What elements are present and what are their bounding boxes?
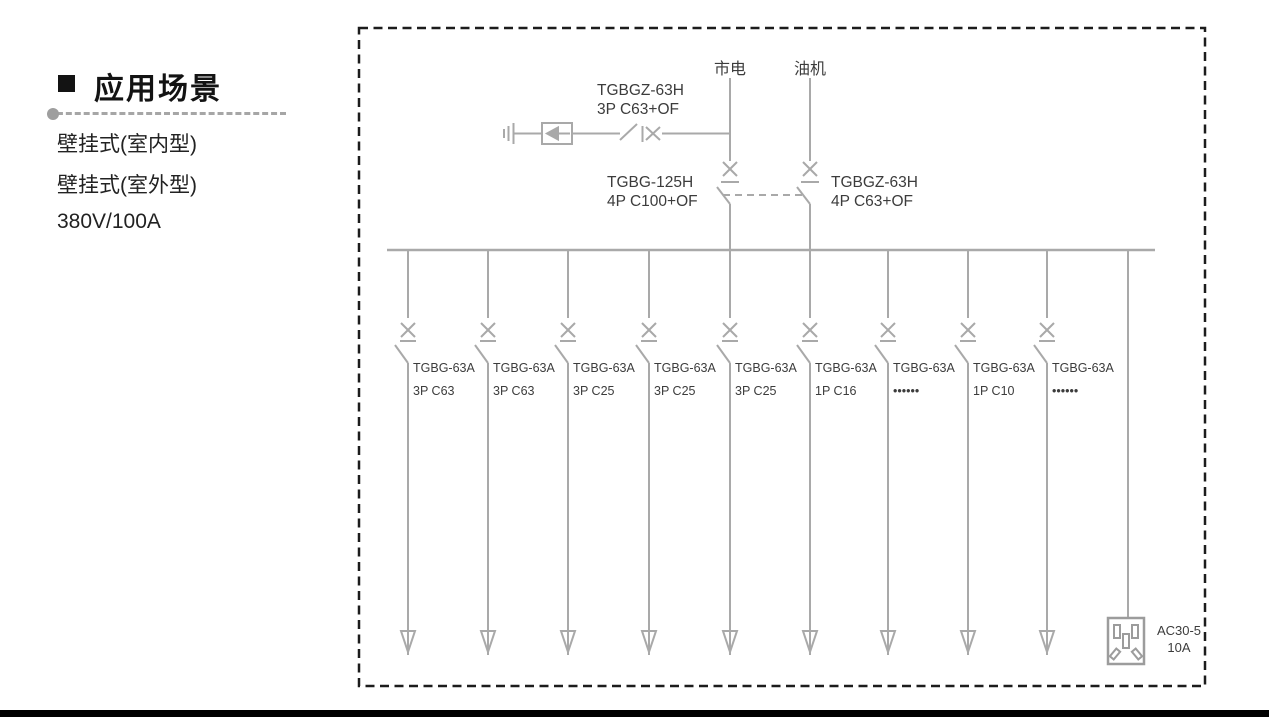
branch-rating: 3P C63 bbox=[493, 384, 555, 398]
mains-breaker-rating: 4P C100+OF bbox=[607, 192, 698, 211]
branch-label: TGBG-63A 3P C25 bbox=[735, 361, 797, 398]
branch-model: TGBG-63A bbox=[413, 361, 475, 375]
branch-model: TGBG-63A bbox=[735, 361, 797, 375]
branch-rating: 1P C16 bbox=[815, 384, 877, 398]
branch-label: TGBG-63A •••••• bbox=[893, 361, 955, 398]
spd-breaker-label: TGBGZ-63H 3P C63+OF bbox=[597, 81, 684, 119]
spd-breaker-blade bbox=[620, 124, 637, 140]
branch-rating: 3P C25 bbox=[654, 384, 716, 398]
socket-icon bbox=[1108, 618, 1144, 664]
branch-label: TGBG-63A 3P C63 bbox=[493, 361, 555, 398]
branch-rating: 1P C10 bbox=[973, 384, 1035, 398]
mains-breaker-label: TGBG-125H 4P C100+OF bbox=[607, 173, 698, 211]
branch-model: TGBG-63A bbox=[1052, 361, 1114, 375]
branch-label: TGBG-63A •••••• bbox=[1052, 361, 1114, 398]
spd-arrow-icon bbox=[547, 128, 558, 140]
spd-breaker-rating: 3P C63+OF bbox=[597, 100, 684, 119]
branch-label: TGBG-63A 3P C25 bbox=[573, 361, 635, 398]
branch-label: TGBG-63A 3P C63 bbox=[413, 361, 475, 398]
branch-model: TGBG-63A bbox=[815, 361, 877, 375]
branch-model: TGBG-63A bbox=[654, 361, 716, 375]
branch-rating: 3P C63 bbox=[413, 384, 475, 398]
branch-model: TGBG-63A bbox=[493, 361, 555, 375]
socket-model: AC30-5 bbox=[1147, 623, 1211, 640]
spd-breaker-model: TGBGZ-63H bbox=[597, 81, 684, 100]
generator-source-label: 油机 bbox=[782, 55, 838, 79]
bottom-black-rule bbox=[0, 710, 1269, 717]
generator-breaker-model: TGBGZ-63H bbox=[831, 173, 918, 192]
generator-breaker-label: TGBGZ-63H 4P C63+OF bbox=[831, 173, 918, 211]
branch-label: TGBG-63A 1P C10 bbox=[973, 361, 1035, 398]
mains-feeder bbox=[717, 78, 739, 250]
branch-model: TGBG-63A bbox=[973, 361, 1035, 375]
surge-protector-branch bbox=[504, 123, 730, 144]
mains-breaker-model: TGBG-125H bbox=[607, 173, 698, 192]
branch-label: TGBG-63A 1P C16 bbox=[815, 361, 877, 398]
outgoing-branches bbox=[395, 250, 1055, 655]
socket-label: AC30-5 10A bbox=[1147, 623, 1211, 656]
branch-rating: 3P C25 bbox=[573, 384, 635, 398]
branch-model: TGBG-63A bbox=[893, 361, 955, 375]
branch-rating: 3P C25 bbox=[735, 384, 797, 398]
mains-source-label: 市电 bbox=[702, 55, 758, 79]
diagram-dashed-border bbox=[359, 28, 1205, 686]
generator-breaker-rating: 4P C63+OF bbox=[831, 192, 918, 211]
branch-rating: •••••• bbox=[893, 384, 955, 398]
branch-label: TGBG-63A 3P C25 bbox=[654, 361, 716, 398]
branch-rating: •••••• bbox=[1052, 384, 1114, 398]
generator-feeder bbox=[797, 78, 819, 250]
socket-rating: 10A bbox=[1147, 640, 1211, 657]
branch-model: TGBG-63A bbox=[573, 361, 635, 375]
